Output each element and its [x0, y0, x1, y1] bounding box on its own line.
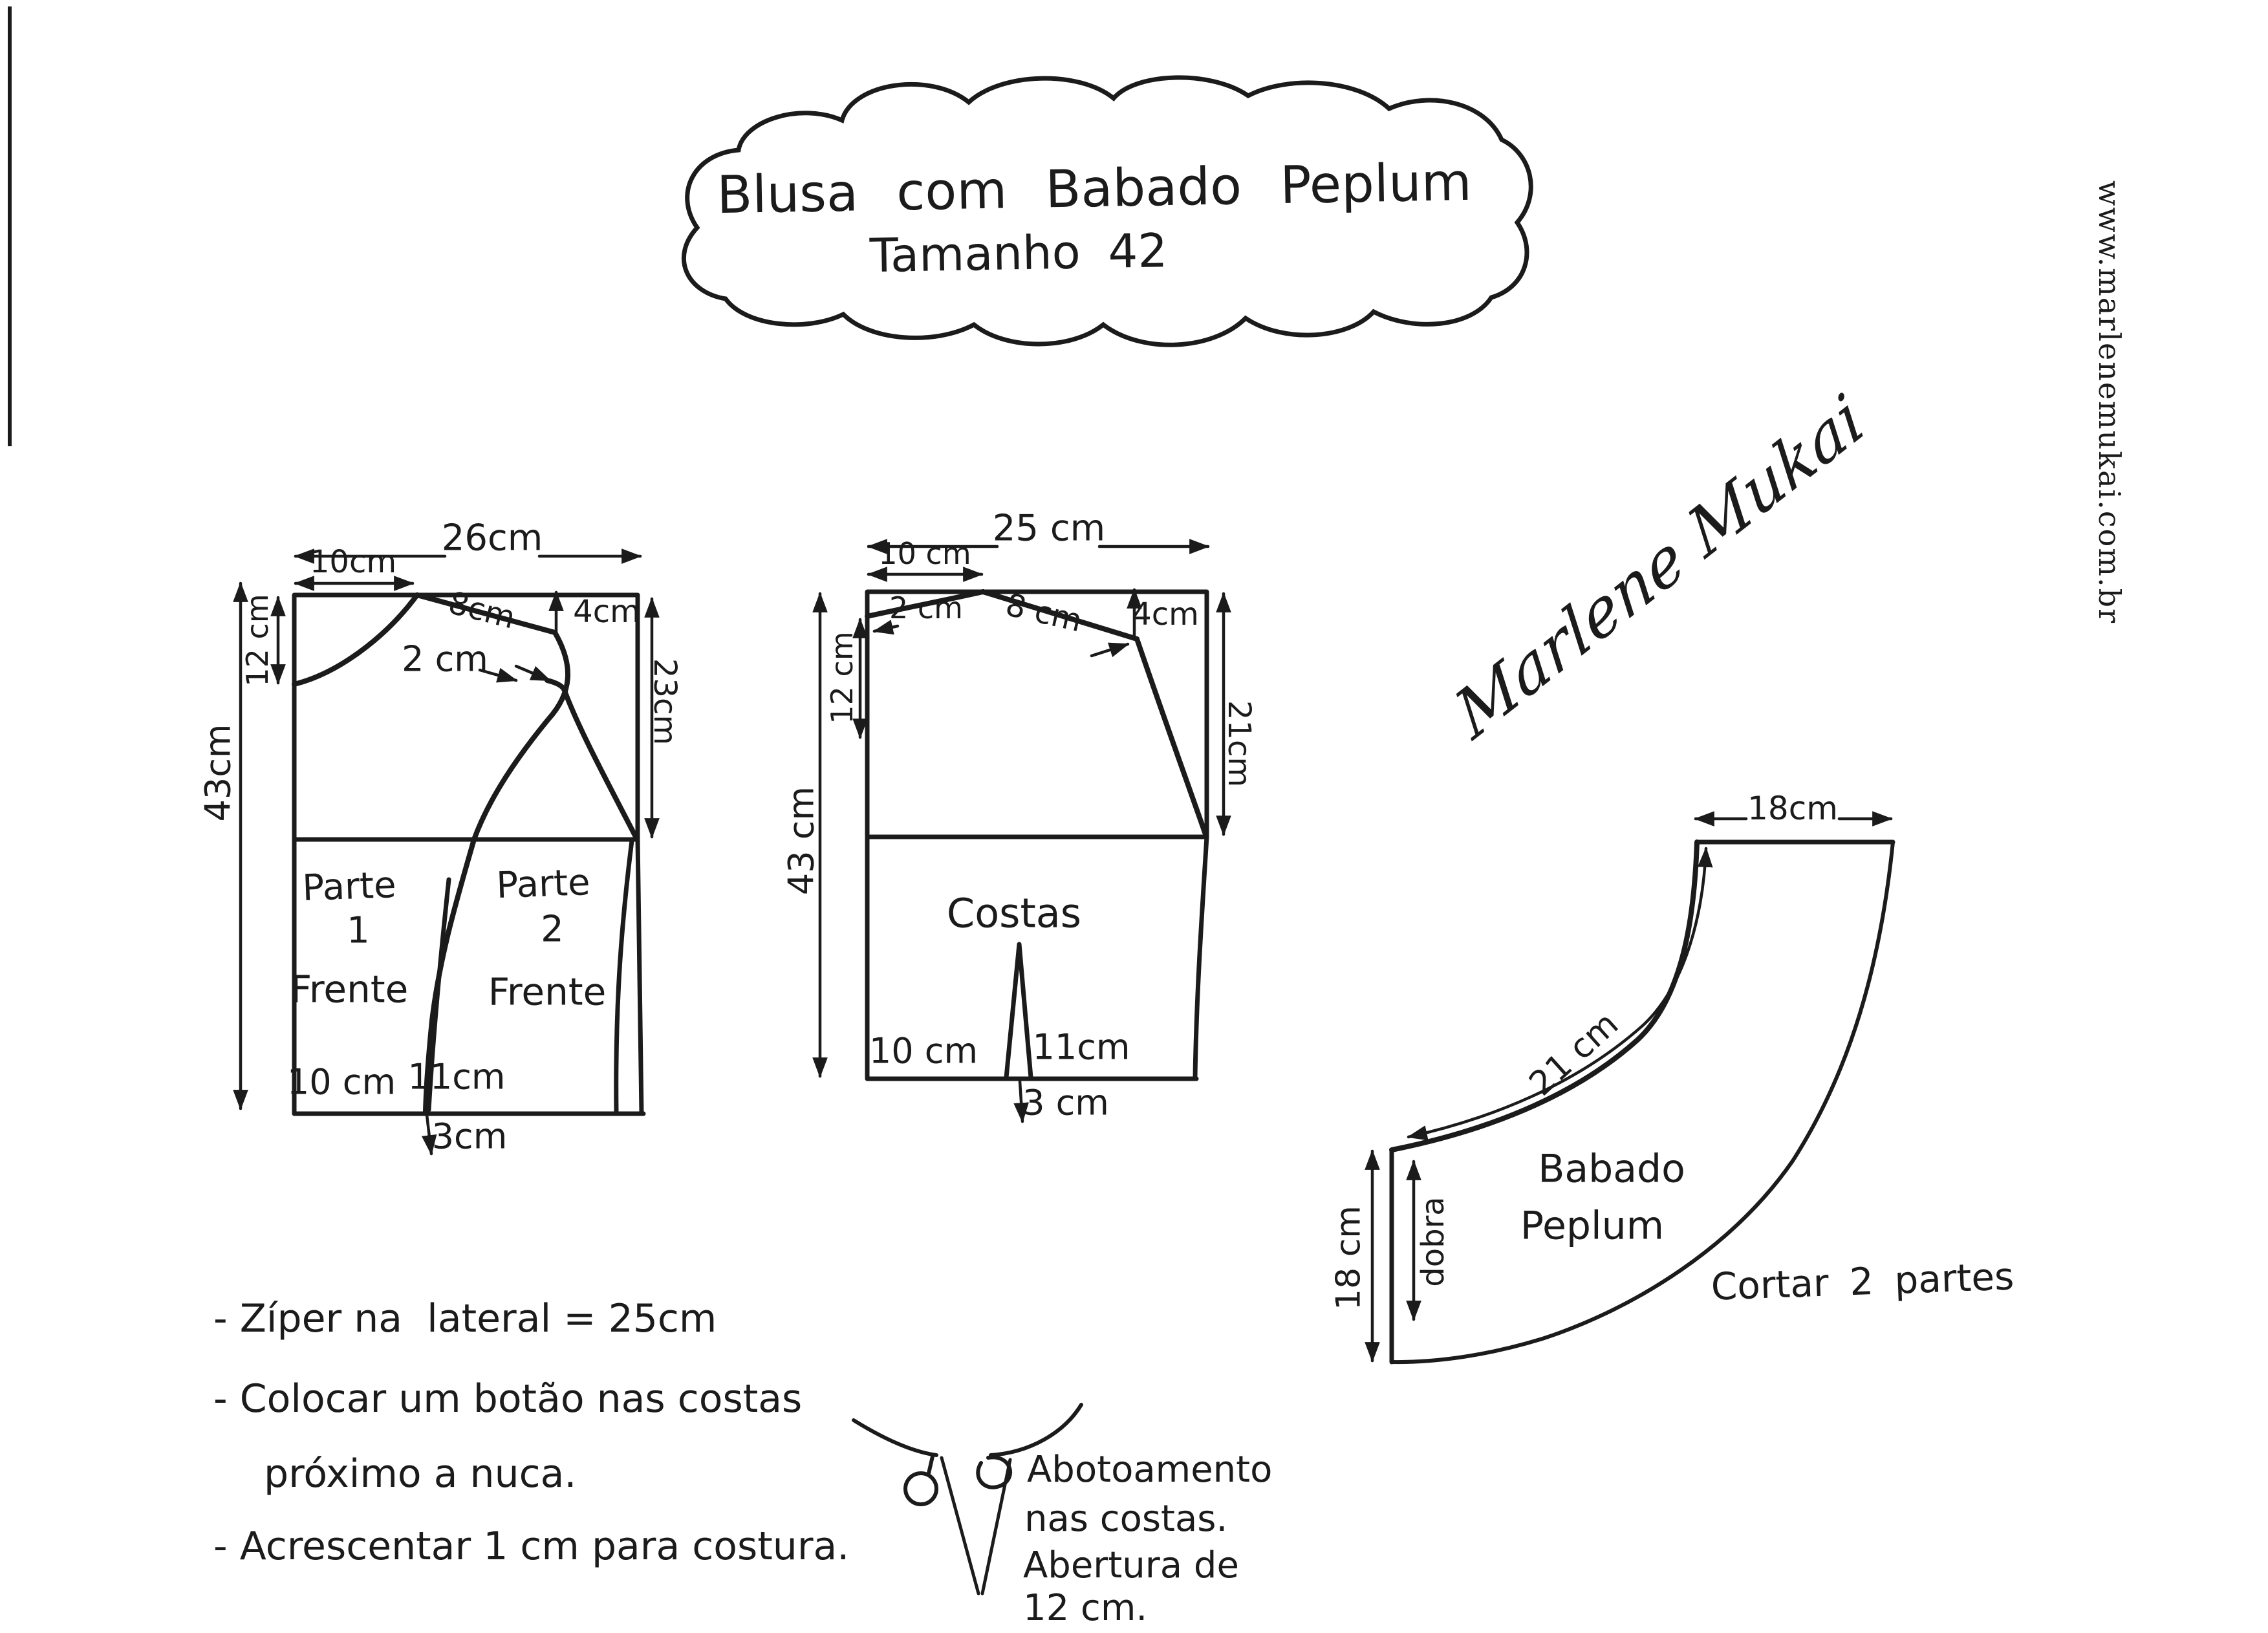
- button-icon: [905, 1473, 936, 1504]
- back-neck-width-label: 10 cm: [878, 538, 971, 569]
- note-seam-allowance: - Acrescentar 1 cm para costura.: [213, 1526, 849, 1567]
- pattern-sheet: Blusa com Babado Peplum Tamanho 42 www.m…: [0, 0, 2268, 1633]
- back-armhole-depth-label: 21cm: [1223, 700, 1255, 787]
- back-shoulder-drop-label: 4cm: [1132, 598, 1199, 631]
- front-part1-name: Frente: [290, 970, 409, 1010]
- back-length-label: 43 cm: [784, 786, 821, 895]
- back-outline: [867, 592, 1207, 1079]
- front-flare-label: 3cm: [432, 1119, 508, 1156]
- back-opening-v: [942, 1458, 1010, 1594]
- front-hem-left-label: 10 cm: [287, 1065, 396, 1101]
- pattern-size: Tamanho 42: [869, 226, 1168, 281]
- button-detail-line1: Abotoamento: [1027, 1451, 1272, 1489]
- button-detail-line3: Abertura de: [1023, 1547, 1239, 1585]
- note-button-cont: próximo a nuca.: [264, 1454, 576, 1495]
- peplum-fold-label: dobra: [1417, 1196, 1449, 1286]
- neck-curve-left: [854, 1420, 936, 1455]
- back-hem-right-label: 11cm: [1032, 1030, 1130, 1066]
- front-part2-title: Parte: [496, 864, 591, 905]
- peplum-cut-note: Cortar 2 partes: [1711, 1257, 2014, 1306]
- back-neck-depth-leader: [874, 626, 898, 631]
- front-neck-width-label: 10cm: [310, 546, 396, 578]
- back-side-seam: [1195, 837, 1207, 1077]
- button-shank: [929, 1456, 933, 1473]
- front-overlap-label: 2 cm: [402, 642, 488, 678]
- front-flare-arrow: [427, 1115, 431, 1154]
- button-detail-line4: 12 cm.: [1023, 1590, 1147, 1628]
- neck-curve-right: [991, 1405, 1081, 1455]
- back-flare-label: 3 cm: [1022, 1085, 1109, 1122]
- back-side-depth-label: 12 cm: [826, 631, 858, 724]
- front-neck-depth-label: 12 cm: [242, 594, 273, 686]
- front-hem-right-label: 11cm: [407, 1059, 505, 1096]
- front-neckline: [294, 595, 417, 684]
- front-length-label: 43cm: [200, 724, 237, 821]
- back-hem-left-label: 10 cm: [869, 1033, 978, 1070]
- peplum-name-line1: Babado: [1538, 1149, 1685, 1190]
- front-part1-number: 1: [347, 913, 370, 951]
- front-width-label: 26cm: [442, 520, 543, 558]
- note-zipper: - Zíper na lateral = 25cm: [213, 1299, 717, 1339]
- peplum-side-depth-label: 18 cm: [1332, 1206, 1367, 1310]
- back-armhole-curve: [1137, 639, 1205, 834]
- back-neck-depth-label: 2 cm: [889, 592, 963, 623]
- front-shoulder-drop-label: 4cm: [573, 596, 640, 628]
- peplum-waist-curve: [1392, 842, 1697, 1150]
- front-shoulder-leader-arrow: [516, 666, 550, 680]
- front-side-seam-curve: [616, 841, 632, 1111]
- note-button: - Colocar um botão nas costas: [213, 1379, 802, 1420]
- back-name-label: Costas: [947, 892, 1081, 934]
- button-detail-line2: nas costas.: [1024, 1500, 1227, 1539]
- back-width-label: 25 cm: [993, 510, 1105, 548]
- peplum-name-line2: Peplum: [1520, 1206, 1664, 1247]
- front-armhole-depth-label: 23cm: [649, 658, 681, 745]
- back-shoulder-leader-arrow: [1092, 644, 1128, 656]
- website-watermark: www.marlenemukai.com.br: [2094, 180, 2125, 624]
- peplum-top-width-label: 18cm: [1747, 792, 1838, 826]
- front-part1-title: Parte: [302, 867, 397, 908]
- front-part2-name: Frente: [488, 973, 607, 1012]
- pattern-title: Blusa com Babado Peplum: [717, 155, 1473, 222]
- back-dart: [1006, 944, 1031, 1077]
- front-part2-number: 2: [541, 911, 564, 949]
